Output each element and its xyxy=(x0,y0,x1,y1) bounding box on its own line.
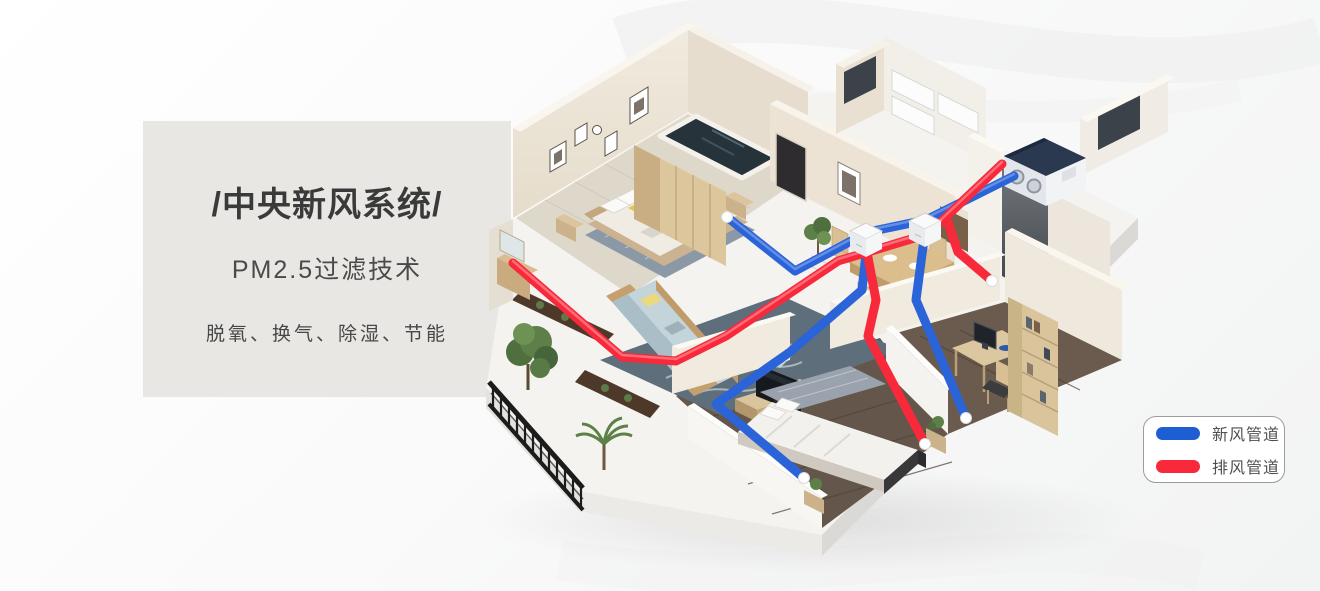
legend-row-fresh-air: 新风管道 xyxy=(1156,421,1284,445)
house-illustration xyxy=(0,0,1320,591)
duct-port xyxy=(1028,180,1041,193)
hero-banner: /中央新风系统/ PM2.5过滤技术 脱氧、换气、除湿、节能 xyxy=(0,0,1320,591)
fresh-air-label: 新风管道 xyxy=(1212,421,1280,445)
wall-clock xyxy=(593,126,602,135)
exhaust-swatch xyxy=(1156,460,1200,473)
exhaust-label: 排风管道 xyxy=(1212,454,1280,478)
pipe-legend: 新风管道 排风管道 xyxy=(1143,416,1285,483)
legend-row-exhaust: 排风管道 xyxy=(1156,454,1284,478)
far-window-wall xyxy=(1080,74,1175,176)
fresh-air-swatch xyxy=(1156,427,1200,440)
